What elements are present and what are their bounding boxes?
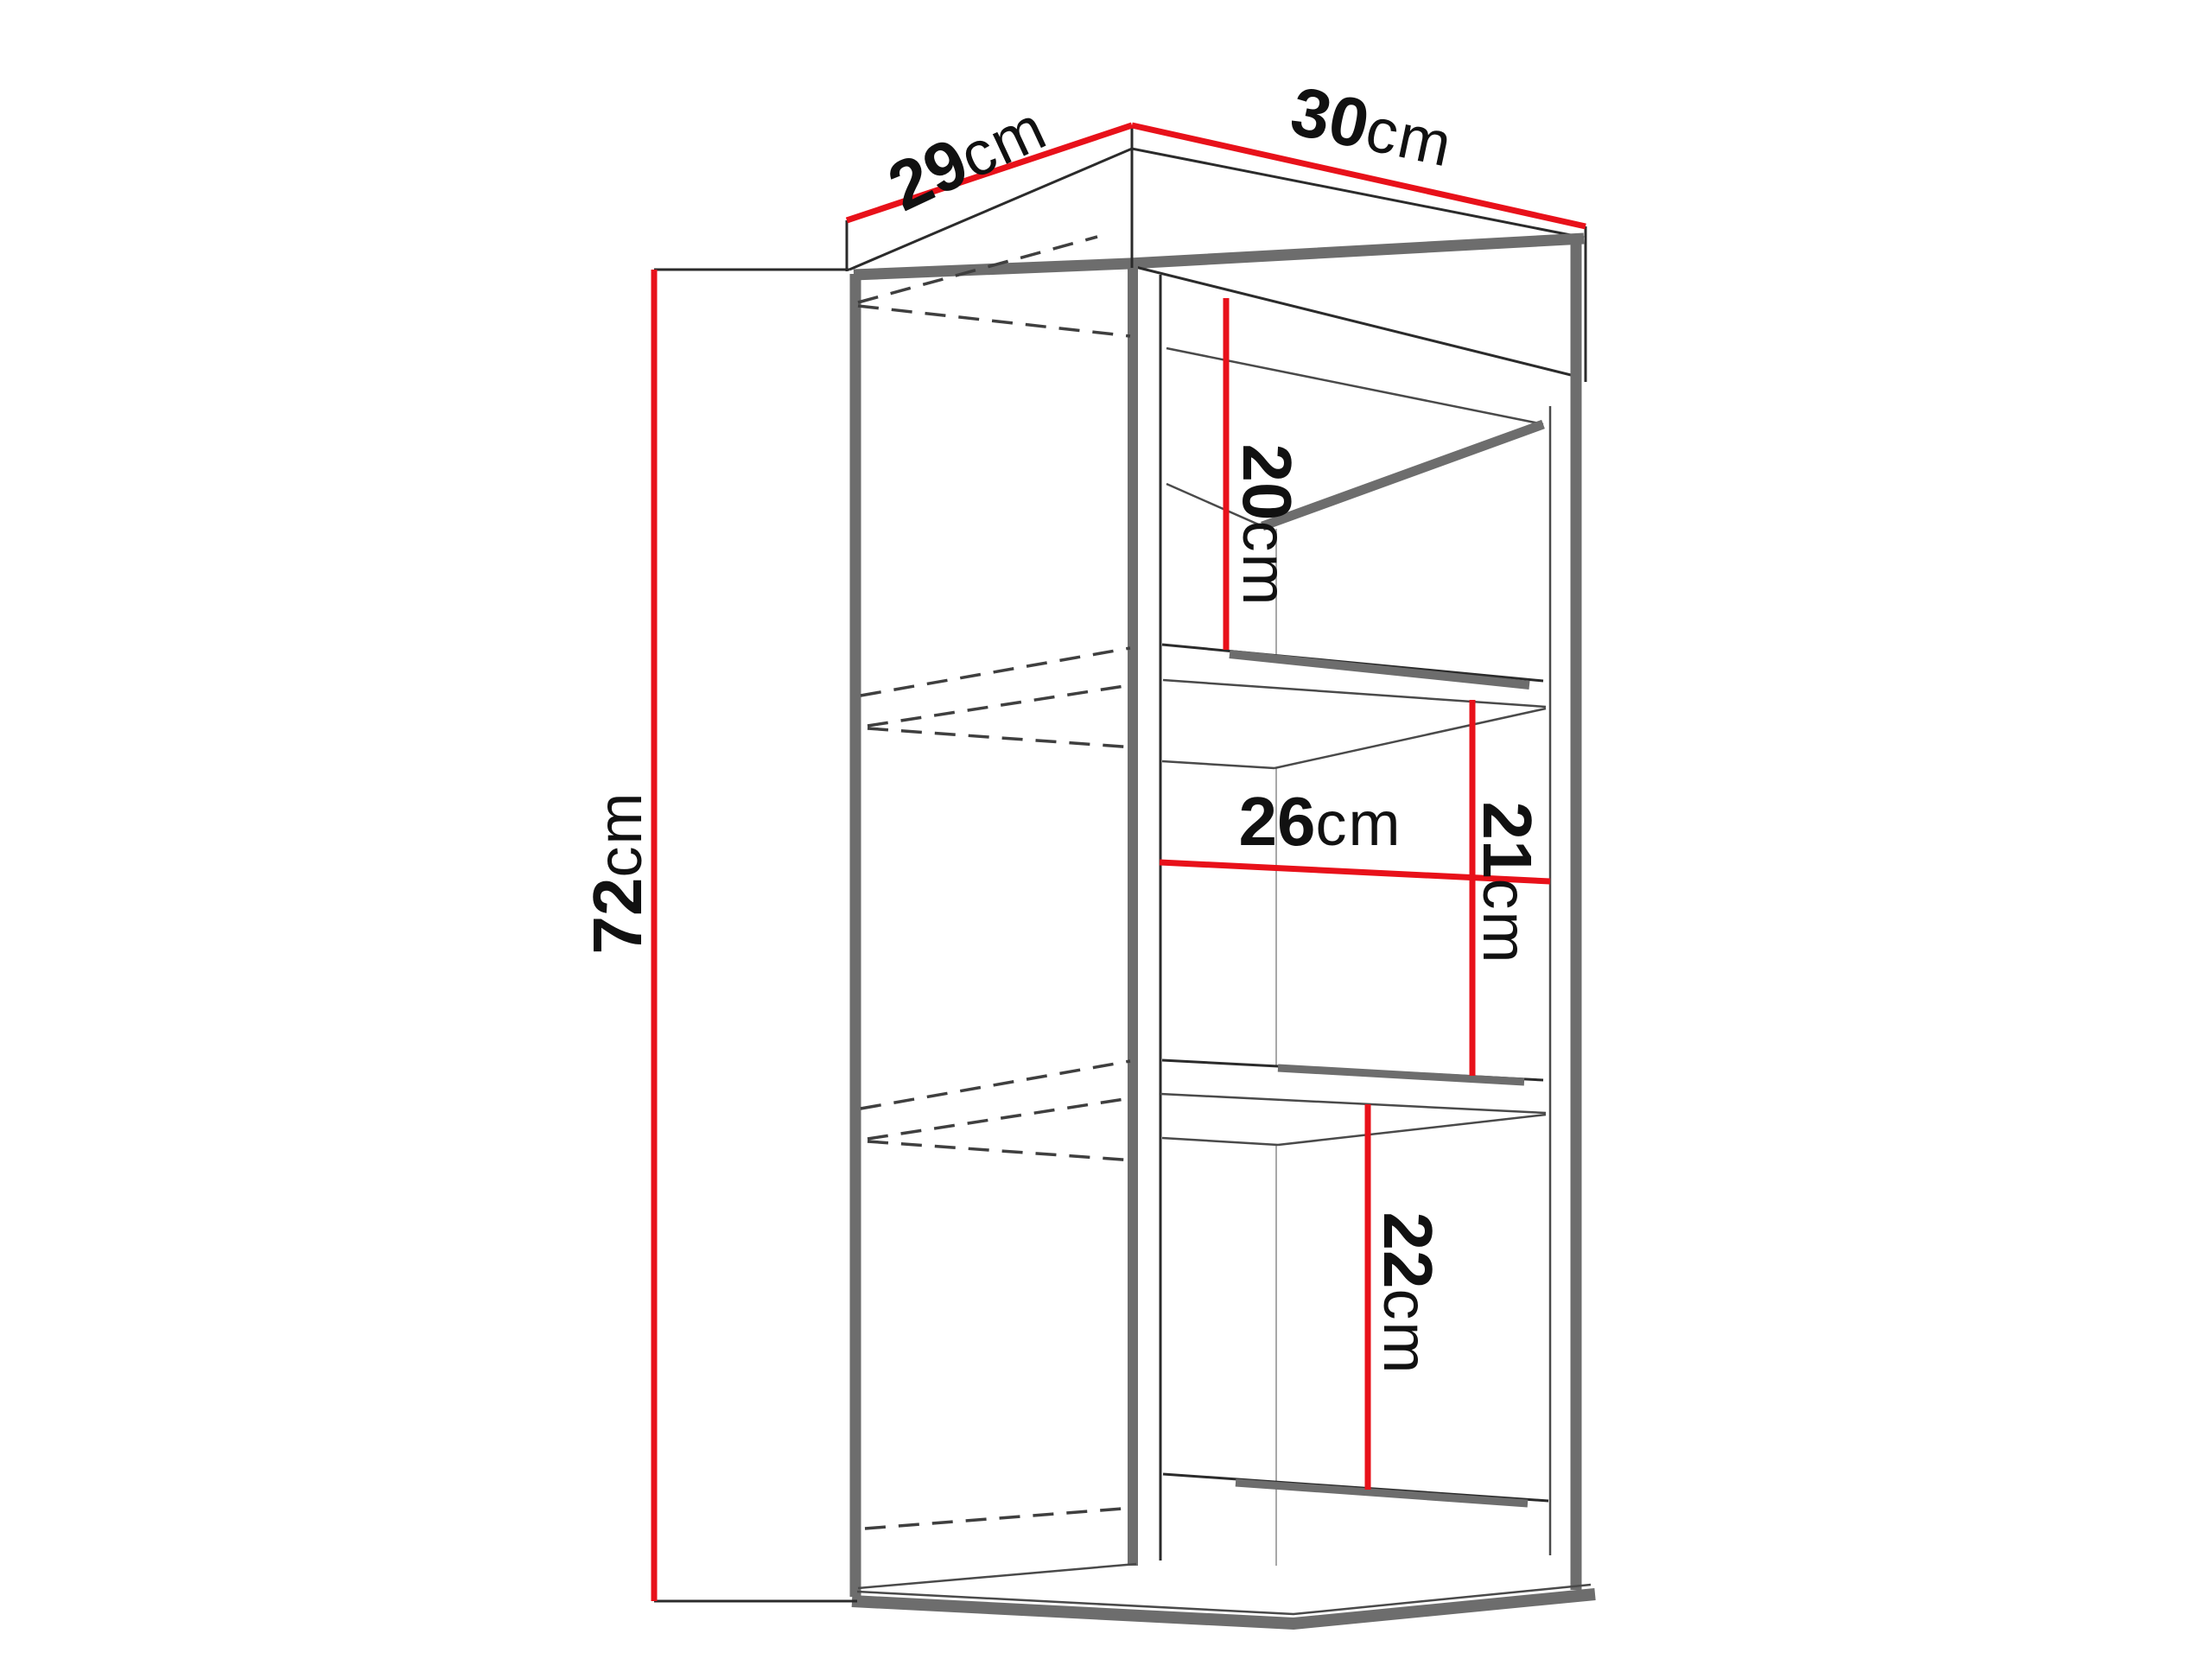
top-panel-edge-band (854, 238, 1584, 275)
hidden-edges-shelf-1 (861, 648, 1135, 747)
bottom-panel-edge-band (1236, 1483, 1528, 1503)
shelf-2 (1160, 1060, 1546, 1145)
cabinet-dimension-diagram: 29cm 30cm 72cm 20cm 26cm 21cm 22cm (0, 0, 2212, 1659)
label-height-72: 72cm (579, 791, 656, 955)
label-compartment-20: 20cm (1229, 444, 1306, 607)
top-panel-underside (1166, 348, 1543, 526)
hidden-edges-shelf-2 (861, 1061, 1135, 1160)
label-interior-width-26: 26cm (1239, 783, 1402, 860)
hidden-edge-bottom-panel (865, 1508, 1134, 1529)
hidden-edges-top-panel (858, 237, 1130, 336)
bottom-edge-band (852, 1594, 1595, 1624)
dimension-lines (654, 125, 1586, 1601)
bottom-face-left-edge (858, 1564, 1136, 1588)
shelf-1 (1162, 645, 1546, 768)
cabinet-bottom (852, 1564, 1595, 1624)
label-depth-29: 29cm (877, 86, 1058, 226)
bottom-panel-top-edge (1163, 1474, 1548, 1503)
label-compartment-22: 22cm (1370, 1212, 1446, 1376)
label-compartment-21: 21cm (1469, 802, 1546, 965)
